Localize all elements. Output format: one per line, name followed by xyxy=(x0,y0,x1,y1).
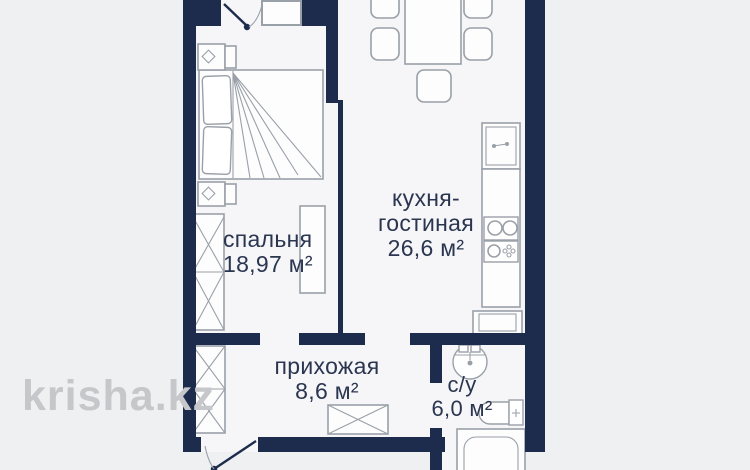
entrance-door-icon xyxy=(205,441,256,470)
bedroom-label: спальня 18,97 м² xyxy=(223,227,335,277)
balcony-door-icon xyxy=(224,4,262,30)
kitchen-living-name-line1: кухня- xyxy=(358,186,494,211)
floor-plan: спальня 18,97 м² кухня- гостиная 26,6 м²… xyxy=(0,0,750,470)
watermark-logo: krisha.kz xyxy=(22,372,215,421)
bathroom-name: с/у xyxy=(414,373,510,397)
hallway-area: 8,6 м² xyxy=(260,379,394,404)
bathroom-area: 6,0 м² xyxy=(414,397,510,421)
hallway-label: прихожая 8,6 м² xyxy=(260,354,394,404)
bathroom-label: с/у 6,0 м² xyxy=(414,373,510,421)
kitchen-living-area: 26,6 м² xyxy=(358,236,494,261)
hallway-name: прихожая xyxy=(260,354,394,379)
bedroom-area: 18,97 м² xyxy=(223,252,335,277)
bedroom-name: спальня xyxy=(223,227,335,252)
kitchen-living-label: кухня- гостиная 26,6 м² xyxy=(358,186,494,261)
kitchen-living-name-line2: гостиная xyxy=(358,211,494,236)
